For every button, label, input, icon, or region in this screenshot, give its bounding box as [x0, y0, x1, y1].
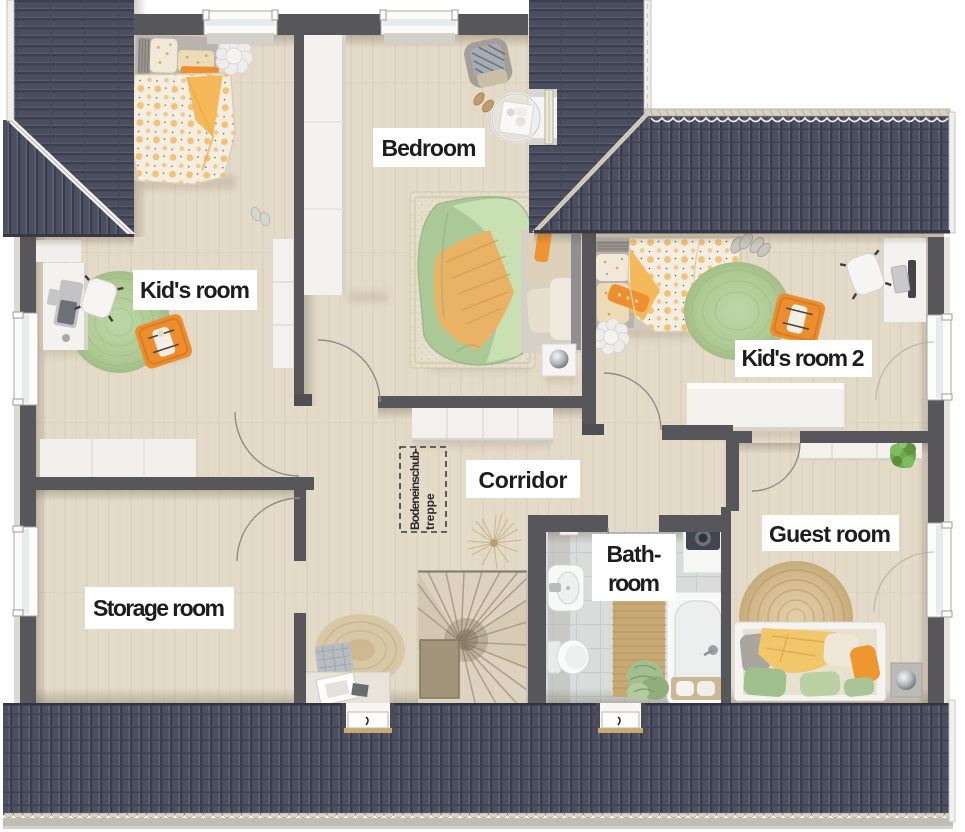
svg-text:treppe: treppe — [423, 493, 437, 530]
svg-text:Bath-: Bath- — [607, 541, 662, 567]
svg-text:room: room — [608, 570, 660, 596]
svg-text:Bedroom: Bedroom — [382, 135, 477, 161]
svg-text:Kid's room 2: Kid's room 2 — [742, 345, 865, 371]
svg-text:Kid's room: Kid's room — [140, 277, 250, 303]
svg-text:Guest room: Guest room — [769, 521, 891, 547]
svg-text:Corridor: Corridor — [479, 467, 568, 493]
svg-text:Storage room: Storage room — [93, 595, 225, 621]
svg-text:Bodeneinschub-: Bodeneinschub- — [408, 448, 422, 530]
